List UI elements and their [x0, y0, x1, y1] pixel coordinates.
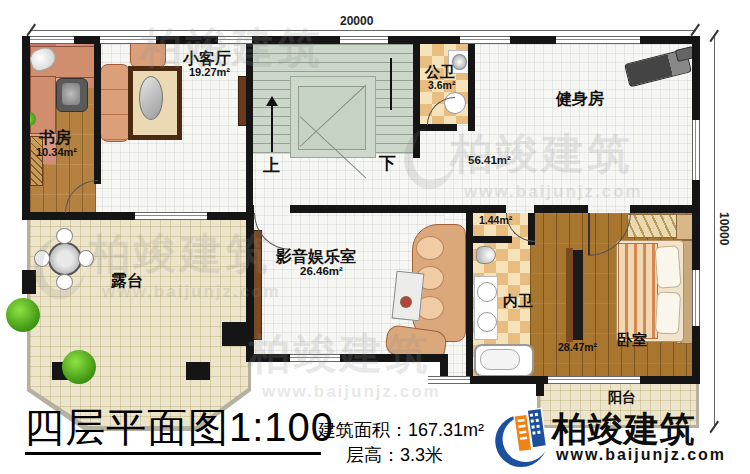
window-right-1	[692, 120, 700, 180]
terrace-pillar-chamfer-right	[186, 362, 210, 380]
bed-pillow-1	[655, 245, 682, 289]
watermark-terrace: 柏竣建筑 www.baijunjz.com	[88, 226, 281, 302]
window-right-2	[692, 270, 700, 326]
company-logo-icon	[494, 404, 556, 470]
bathtub-inner	[480, 349, 520, 370]
bed-pillow-2	[655, 291, 681, 334]
av-sofa-cushion-1	[416, 236, 444, 260]
wall-pubbath-right	[468, 36, 475, 131]
dim-top-label: 20000	[340, 14, 373, 28]
window-top-5	[460, 36, 510, 44]
floor-height-text: 层高：3.3米	[346, 443, 443, 467]
room-label-gym: 健身房	[556, 89, 604, 110]
dim-right-label: 10000	[717, 212, 731, 245]
room-area-study: 10.34m²	[36, 146, 77, 158]
room-label-inner-bath: 内卫	[503, 292, 533, 311]
room-area-av: 26.46m²	[300, 265, 343, 277]
living-sofa	[100, 64, 130, 142]
wall-balcony-stub	[536, 378, 544, 396]
title-underline	[25, 452, 321, 455]
living-rug-oval	[139, 76, 163, 120]
stair-up-label: 上	[263, 154, 280, 177]
stair-up-arrowhead	[266, 96, 278, 106]
wall-left	[22, 36, 30, 220]
room-area-nook: 1.44m²	[479, 214, 512, 226]
watermark-logo-ghost-2	[34, 238, 85, 299]
bedroom-door-leaf	[588, 213, 590, 255]
bedroom-tv-backing	[566, 248, 573, 342]
dim-line-top	[30, 30, 696, 31]
room-area-bedroom: 28.47m²	[558, 341, 597, 353]
elevator-shaft	[298, 86, 366, 150]
inner-bath-sink-1	[477, 282, 497, 302]
building-area-text: 建筑面积：167.31m²	[318, 418, 484, 442]
wall-study-right	[94, 36, 101, 184]
watermark-bottom: 柏竣建筑 www.baijunjz.com	[248, 326, 441, 402]
av-table-flowers	[400, 296, 412, 308]
terrace-bush-2	[62, 350, 96, 384]
room-label-balcony: 阳台	[608, 389, 636, 407]
study-desk-left	[30, 76, 56, 134]
stair-up-arrow	[271, 100, 273, 152]
watermark-top: 柏竣建筑	[140, 20, 324, 76]
window-top-4	[340, 36, 388, 44]
dim-line-right	[714, 36, 715, 428]
window-balcony-slider	[548, 376, 640, 384]
wall-mid-1	[290, 205, 506, 213]
company-logo-url: www.baijunjz.com	[556, 446, 726, 464]
terrace-pillar-corner	[222, 322, 250, 346]
wall-mid-2	[534, 205, 588, 213]
wall-mid-3	[630, 205, 700, 213]
window-top-1	[30, 36, 74, 44]
study-chair-seat	[62, 83, 80, 105]
terrace-bush-1	[6, 298, 40, 332]
room-label-bedroom: 卧室	[617, 331, 647, 350]
watermark-logo-ghost-1	[404, 128, 455, 189]
stair-down-arrow	[390, 58, 392, 110]
inner-bath-toilet	[476, 246, 496, 264]
wardrobe	[627, 214, 679, 238]
window-terrace-slider	[135, 212, 207, 220]
bed-blanket	[618, 243, 658, 339]
window-top-6	[556, 36, 640, 44]
watermark-mid: 柏竣建筑 www.baijunjz.com	[450, 126, 643, 202]
room-area-public-bath: 3.6m²	[428, 79, 455, 91]
plan-title: 四层平面图1:100	[24, 400, 334, 455]
floor-plan-canvas: 20000 10000 书房 10.34m² 小客厅 19.27m² 公卫 3.…	[0, 0, 750, 474]
stair-down-label: 下	[379, 152, 396, 175]
wall-nook-bottom	[472, 236, 512, 243]
inner-bath-sink-2	[477, 312, 497, 332]
bedroom-tv-panel	[573, 250, 583, 340]
